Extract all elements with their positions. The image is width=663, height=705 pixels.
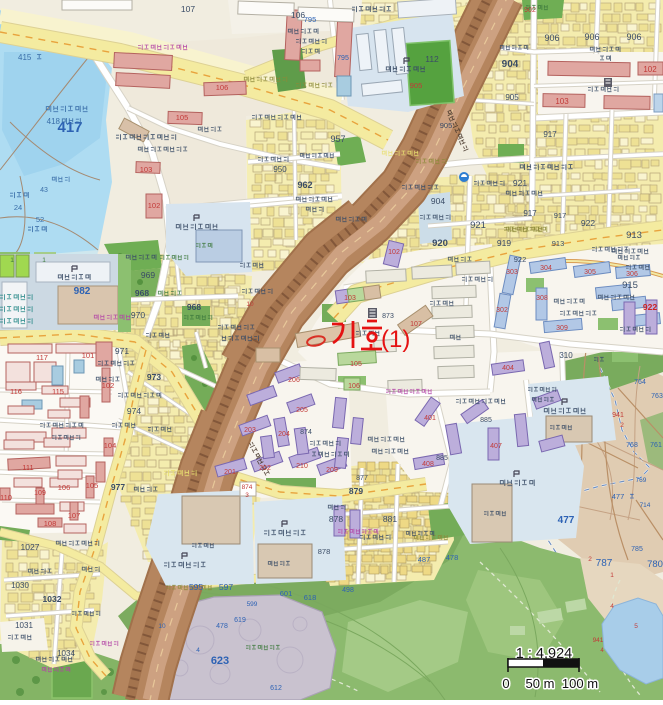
svg-text:498: 498 — [342, 587, 354, 594]
svg-text:2: 2 — [588, 556, 592, 563]
svg-text:941: 941 — [593, 637, 604, 644]
svg-text:302: 302 — [496, 307, 508, 314]
svg-text:612: 612 — [270, 685, 282, 692]
svg-text:477: 477 — [612, 492, 625, 501]
svg-text:917: 917 — [543, 130, 557, 139]
svg-text:487: 487 — [418, 555, 431, 564]
svg-text:105: 105 — [350, 361, 362, 368]
svg-text:5: 5 — [634, 623, 638, 630]
svg-text:418: 418 — [47, 117, 61, 126]
svg-text:310: 310 — [559, 351, 573, 360]
svg-text:10: 10 — [246, 301, 254, 308]
svg-text:968: 968 — [135, 288, 149, 298]
svg-text:874: 874 — [242, 484, 253, 491]
svg-text:407: 407 — [490, 443, 502, 450]
svg-text:969: 969 — [141, 270, 155, 280]
svg-text:106: 106 — [348, 383, 360, 390]
svg-text:104: 104 — [104, 441, 117, 450]
svg-text:878: 878 — [329, 514, 343, 524]
svg-text:50 m: 50 m — [526, 676, 555, 691]
svg-text:780: 780 — [647, 559, 663, 570]
svg-text:52: 52 — [36, 215, 44, 224]
svg-text:913: 913 — [626, 230, 642, 241]
svg-text:957: 957 — [330, 134, 345, 144]
svg-text:309: 309 — [556, 325, 568, 332]
svg-text:950: 950 — [273, 165, 287, 174]
svg-text:100 m: 100 m — [562, 676, 598, 691]
svg-text:102: 102 — [148, 201, 161, 210]
svg-text:879: 879 — [349, 486, 363, 496]
svg-text:921: 921 — [470, 220, 486, 231]
svg-text:913: 913 — [552, 239, 565, 248]
svg-text:(1): (1) — [381, 326, 410, 353]
svg-text:623: 623 — [211, 655, 229, 667]
svg-text:768: 768 — [626, 442, 638, 449]
svg-text:2: 2 — [620, 422, 624, 429]
svg-text:105: 105 — [86, 481, 99, 490]
svg-text:107: 107 — [68, 511, 81, 520]
svg-text:619: 619 — [234, 617, 246, 624]
svg-text:922: 922 — [581, 218, 595, 228]
svg-text:209: 209 — [326, 467, 338, 474]
svg-text:117: 117 — [36, 353, 48, 362]
svg-text:1: 1 — [42, 257, 46, 264]
svg-text:905: 905 — [440, 121, 453, 130]
svg-text:417: 417 — [57, 119, 82, 136]
svg-text:595: 595 — [189, 582, 203, 592]
svg-text:601: 601 — [280, 589, 293, 598]
svg-text:111: 111 — [22, 463, 33, 472]
svg-text:1027: 1027 — [21, 542, 40, 552]
svg-text:971: 971 — [115, 346, 129, 356]
svg-text:110: 110 — [0, 493, 12, 502]
svg-text:915: 915 — [622, 280, 638, 291]
svg-text:974: 974 — [127, 406, 141, 416]
svg-text:878: 878 — [318, 547, 331, 556]
svg-text:906: 906 — [544, 33, 559, 43]
svg-text:401: 401 — [424, 415, 436, 422]
svg-text:115: 115 — [52, 387, 64, 396]
svg-text:922: 922 — [643, 302, 657, 312]
svg-text:478: 478 — [446, 553, 459, 562]
svg-text:306: 306 — [626, 271, 638, 278]
svg-text:885: 885 — [436, 455, 448, 462]
svg-text:4: 4 — [610, 603, 614, 610]
svg-text:1: 1 — [10, 257, 14, 264]
svg-text:205: 205 — [296, 407, 308, 414]
svg-text:874: 874 — [300, 429, 312, 436]
svg-text:906: 906 — [626, 32, 641, 42]
svg-text:201: 201 — [224, 469, 236, 476]
svg-text:922: 922 — [514, 255, 527, 264]
svg-text:977: 977 — [111, 482, 125, 492]
svg-text:102: 102 — [388, 249, 400, 256]
svg-text:24: 24 — [14, 203, 22, 212]
svg-text:920: 920 — [432, 238, 448, 249]
svg-text:597: 597 — [219, 582, 233, 592]
svg-text:202: 202 — [259, 465, 271, 472]
svg-text:105: 105 — [176, 113, 189, 122]
svg-text:107: 107 — [181, 4, 195, 14]
svg-text:761: 761 — [650, 442, 662, 449]
svg-text:970: 970 — [131, 310, 145, 320]
svg-text:618: 618 — [304, 593, 317, 602]
svg-text:764: 764 — [634, 379, 646, 386]
svg-text:43: 43 — [40, 187, 48, 194]
svg-text:982: 982 — [74, 286, 91, 297]
svg-text:917: 917 — [554, 211, 567, 220]
svg-text:101: 101 — [82, 351, 95, 360]
svg-text:106: 106 — [216, 83, 229, 92]
svg-text:116: 116 — [10, 387, 22, 396]
svg-text:881: 881 — [383, 514, 397, 524]
svg-text:304: 304 — [540, 265, 552, 272]
svg-text:877: 877 — [356, 475, 368, 482]
svg-text:1: 1 — [610, 572, 614, 579]
svg-text:941: 941 — [612, 412, 624, 419]
svg-text:103: 103 — [140, 165, 153, 174]
svg-text:968: 968 — [187, 302, 201, 312]
svg-text:303: 303 — [506, 269, 518, 276]
svg-text:112: 112 — [425, 54, 439, 64]
svg-text:769: 769 — [636, 477, 647, 484]
svg-text:1031: 1031 — [15, 621, 33, 630]
svg-text:795: 795 — [337, 55, 349, 62]
svg-text:305: 305 — [584, 269, 596, 276]
svg-text:404: 404 — [502, 365, 514, 372]
svg-text:415: 415 — [18, 53, 32, 62]
svg-text:109: 109 — [34, 490, 46, 497]
svg-text:102: 102 — [102, 381, 115, 390]
svg-text:206: 206 — [288, 377, 300, 384]
svg-text:103: 103 — [344, 295, 356, 302]
svg-text:107: 107 — [410, 321, 422, 328]
svg-text:787: 787 — [596, 558, 613, 569]
svg-text:408: 408 — [422, 461, 434, 468]
svg-text:102: 102 — [643, 65, 657, 74]
svg-text:905: 905 — [505, 93, 519, 102]
svg-text:763: 763 — [651, 393, 663, 400]
svg-text:4: 4 — [196, 647, 200, 654]
svg-text:904: 904 — [502, 59, 519, 70]
svg-text:885: 885 — [480, 417, 492, 424]
svg-text:106: 106 — [58, 483, 71, 492]
svg-text:919: 919 — [497, 238, 511, 248]
svg-text:1032: 1032 — [43, 594, 62, 604]
svg-text:0: 0 — [502, 676, 509, 691]
svg-text:308: 308 — [536, 295, 548, 302]
svg-text:210: 210 — [296, 463, 308, 470]
svg-text:103: 103 — [555, 97, 569, 106]
svg-text:204: 204 — [278, 431, 290, 438]
svg-text:108: 108 — [44, 519, 57, 528]
svg-text:873: 873 — [382, 313, 394, 320]
svg-text:478: 478 — [216, 623, 228, 630]
svg-text:3: 3 — [245, 492, 249, 499]
svg-text:905: 905 — [410, 81, 423, 90]
svg-text:921: 921 — [513, 178, 527, 188]
svg-text:906: 906 — [584, 32, 599, 42]
svg-text:714: 714 — [640, 502, 651, 509]
svg-text:10: 10 — [158, 623, 166, 630]
svg-text:904: 904 — [431, 196, 445, 206]
svg-text:203: 203 — [244, 427, 256, 434]
svg-text:795: 795 — [304, 15, 317, 24]
svg-text:917: 917 — [523, 209, 537, 218]
svg-text:599: 599 — [247, 601, 258, 608]
svg-text:477: 477 — [558, 515, 575, 526]
svg-text:785: 785 — [631, 546, 643, 553]
svg-text:1030: 1030 — [11, 581, 29, 590]
svg-text:973: 973 — [147, 372, 161, 382]
svg-text:962: 962 — [297, 180, 312, 190]
